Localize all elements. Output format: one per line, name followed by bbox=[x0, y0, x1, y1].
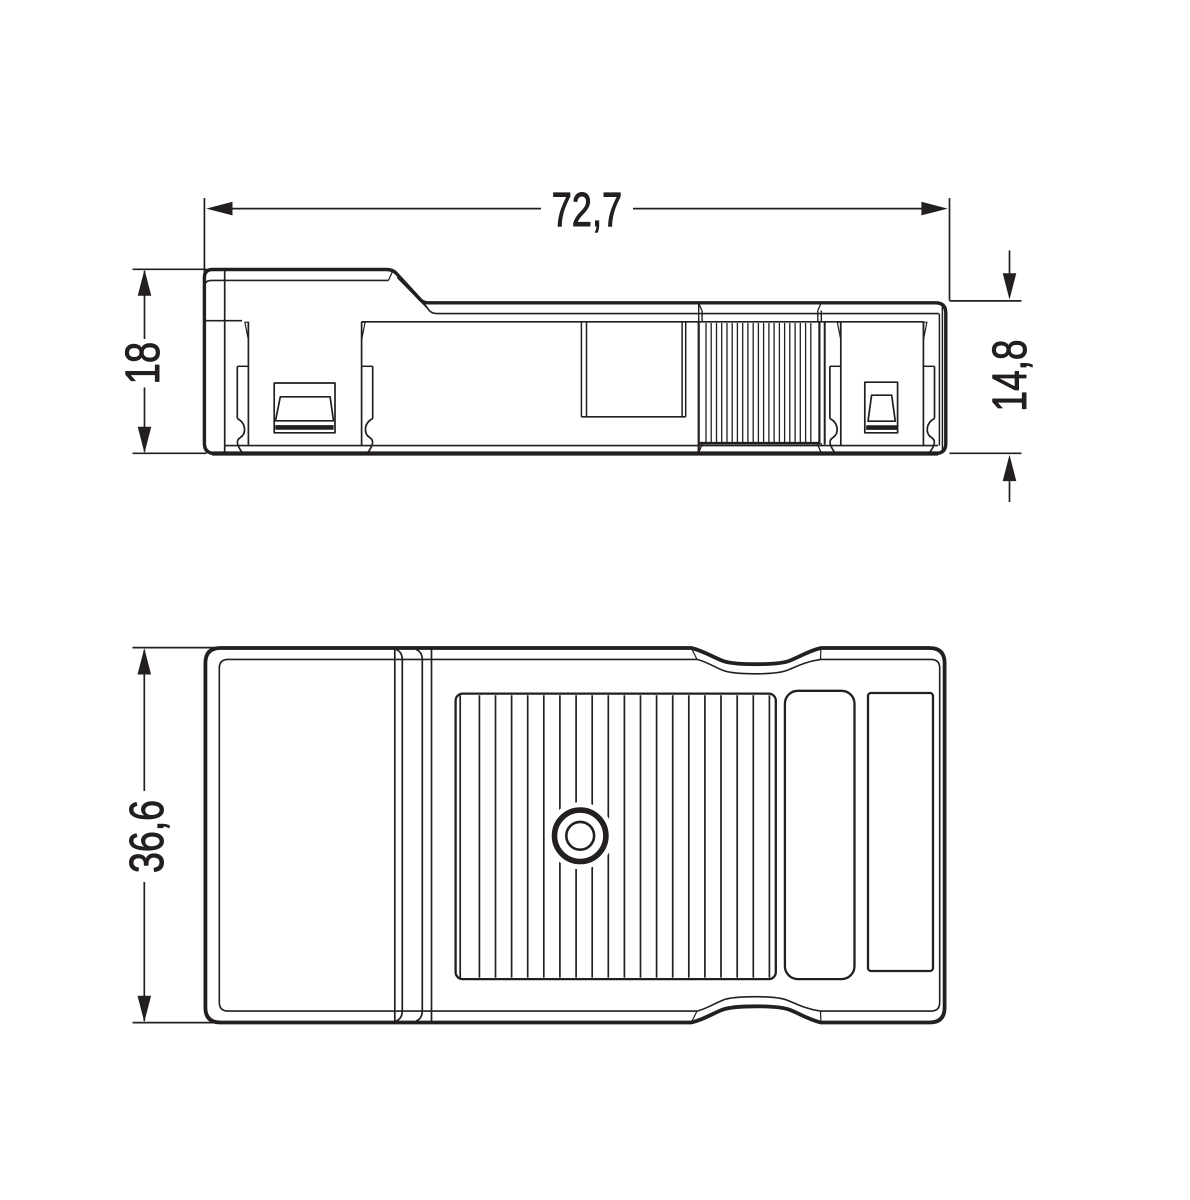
svg-text:14,8: 14,8 bbox=[984, 340, 1037, 412]
svg-text:18: 18 bbox=[117, 342, 170, 385]
svg-text:72,7: 72,7 bbox=[552, 184, 623, 237]
svg-text:36,6: 36,6 bbox=[121, 800, 174, 873]
